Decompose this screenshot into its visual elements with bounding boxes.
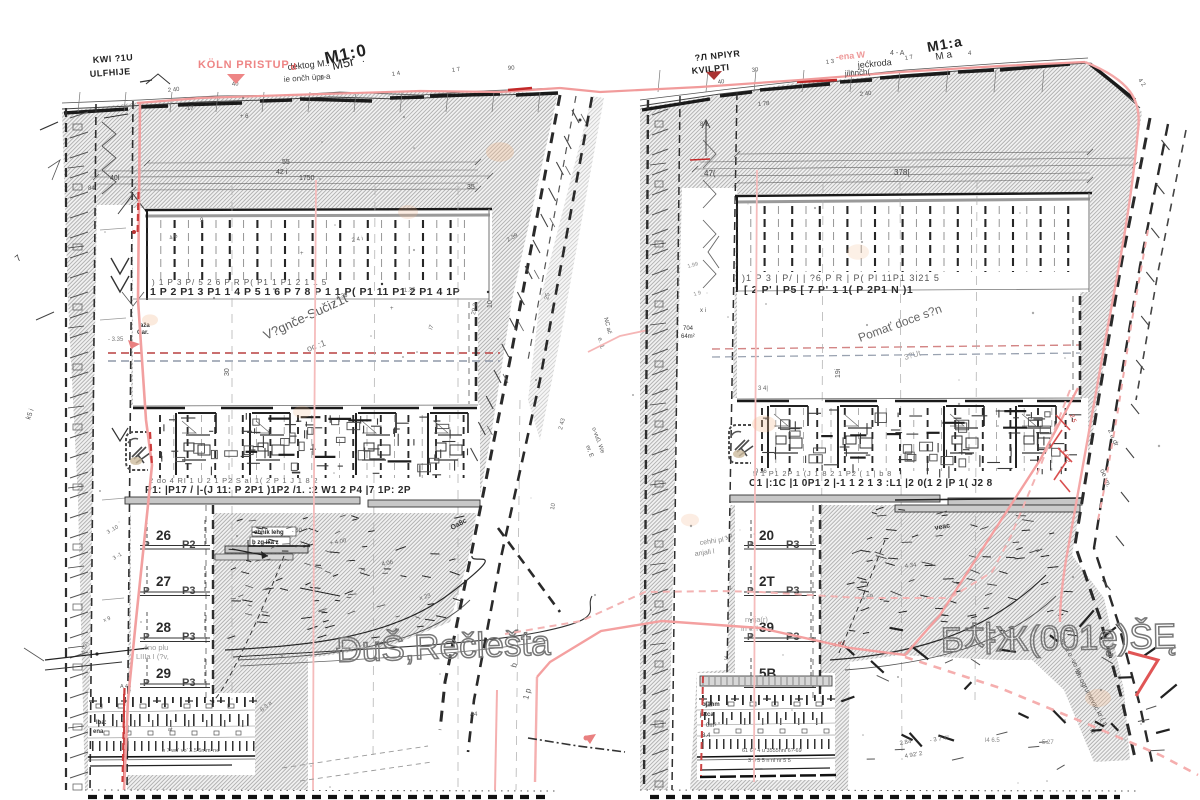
svg-text:8 1: 8 1 (700, 122, 709, 128)
svg-text:KÖLN PRISTUP: KÖLN PRISTUP (198, 58, 290, 71)
svg-text:5.27: 5.27 (1042, 740, 1054, 746)
svg-text:2 40: 2 40 (860, 91, 873, 98)
svg-text:1 7: 1 7 (451, 67, 461, 74)
svg-text:ena: ena (93, 729, 104, 735)
svg-text:8.4: 8.4 (702, 733, 711, 739)
svg-text:1.35: 1.35 (336, 293, 349, 300)
svg-text:0m²: 0m² (706, 723, 716, 729)
svg-text:2T: 2T (759, 574, 776, 589)
svg-text:1.36: 1.36 (404, 287, 417, 294)
svg-text:- 3.35: - 3.35 (108, 337, 124, 343)
svg-text:+: + (390, 306, 394, 312)
svg-text:P3: P3 (182, 585, 195, 597)
svg-text:+: + (300, 251, 304, 257)
svg-text:P3: P3 (786, 539, 799, 551)
svg-text:4 - A: 4 - A (890, 50, 905, 57)
svg-text:l4 6.5: l4 6.5 (985, 738, 1000, 744)
svg-text:P: P (747, 632, 754, 643)
svg-text:P3: P3 (182, 677, 195, 689)
svg-text:30: 30 (224, 368, 231, 376)
svg-text:[ 2 P' | P5 [ 7 P' 1: [ 2 P' | P5 [ 7 P' 1 1( P 2P1 N )1 (744, 284, 913, 296)
svg-text:47(: 47( (704, 169, 716, 178)
svg-text:LIIIa I (?v,: LIIIa I (?v, (136, 652, 169, 661)
svg-text:29: 29 (156, 666, 171, 681)
svg-text:P: P (143, 632, 150, 643)
svg-text:3: 3 (724, 656, 727, 662)
svg-text:42 i: 42 i (276, 169, 288, 176)
svg-text:.: . (362, 54, 365, 65)
svg-text:_______: _______ (339, 638, 379, 649)
svg-text:64m²: 64m² (681, 334, 695, 340)
svg-text:b 7 wu' vo' 3.5 5mm' ne: b 7 wu' vo' 3.5 5mm' ne (162, 748, 219, 754)
svg-text:27: 27 (156, 574, 171, 589)
svg-text:jilnnčh(: jilnnčh( (844, 67, 871, 78)
svg-text:) 1 P 3 P/ 5 2 6: ) 1 P 3 P/ 5 2 6 P R P( P1 1 P1 2 1 1 5 (152, 278, 327, 287)
svg-text:20: 20 (759, 528, 774, 543)
svg-text:P1: |P17 / |-(J 11: P 2P: P1: |P17 / |-(J 11: P 2P1 )1P2 /1. :2 W1… (145, 485, 411, 496)
svg-text:P: P (143, 586, 150, 597)
svg-text:P3: P3 (182, 631, 195, 643)
svg-text:P: P (143, 678, 150, 689)
svg-text:1 78: 1 78 (758, 101, 771, 108)
svg-text:84: 84 (88, 186, 95, 192)
svg-text:3 4|: 3 4| (758, 386, 768, 392)
svg-text:61 6? 4 u 3555nnl 6?-69: 61 6? 4 u 3555nnl 6?-69 (742, 748, 802, 754)
svg-text:28: 28 (156, 620, 172, 635)
svg-text:40l: 40l (110, 175, 120, 182)
svg-text:ojanm: ojanm (702, 702, 720, 708)
svg-text:55: 55 (282, 159, 290, 166)
svg-text:19i: 19i (835, 368, 842, 378)
svg-text:at: at (168, 727, 173, 733)
svg-text:1 3: 1 3 (825, 59, 835, 66)
svg-text:378[: 378[ (894, 168, 910, 177)
svg-text:2 do 4 RI 1 U 2 1 P2 S: 2 do 4 RI 1 U 2 1 P2 S al 1( 2 P 1 J 1 8… (149, 476, 318, 485)
svg-text:2 40: 2 40 (168, 87, 181, 94)
svg-text:9 26: 9 26 (755, 469, 767, 475)
svg-text:Б챠Ж(001ę)ŠĘ: Б챠Ж(001ę)ŠĘ (940, 617, 1176, 660)
svg-text:C1 |:1C |1 0P1 2 |-1: C1 |:1C |1 0P1 2 |-1 1 2 1 3 :L1 |2 0(1 … (749, 478, 993, 489)
svg-text:A4: A4 (470, 712, 478, 718)
svg-text:26: 26 (156, 528, 172, 543)
svg-text:)1 P 3 | P/ | | ?6 P: )1 P 3 | P/ | | ?6 P R | P( Pl 11P1 3l21… (742, 273, 940, 283)
svg-text:..čno plu: ..čno plu (140, 643, 168, 652)
svg-text:nvija(r): nvija(r) (745, 615, 768, 624)
svg-text:90: 90 (508, 65, 516, 72)
svg-text:704: 704 (683, 326, 694, 332)
svg-text:-17: -17 (185, 106, 194, 112)
svg-text:P: P (747, 540, 754, 551)
svg-text:x i: x i (700, 308, 706, 314)
svg-text:10: 10 (487, 300, 494, 308)
svg-text:1 4: 1 4 (391, 71, 401, 78)
svg-text:lba:: lba: (96, 720, 107, 726)
svg-text:+ 6: + 6 (240, 114, 249, 120)
svg-text:d: d (290, 61, 297, 72)
svg-text:35: 35 (467, 184, 475, 191)
svg-text:1750: 1750 (299, 175, 315, 182)
svg-text:P2: P2 (182, 539, 195, 551)
